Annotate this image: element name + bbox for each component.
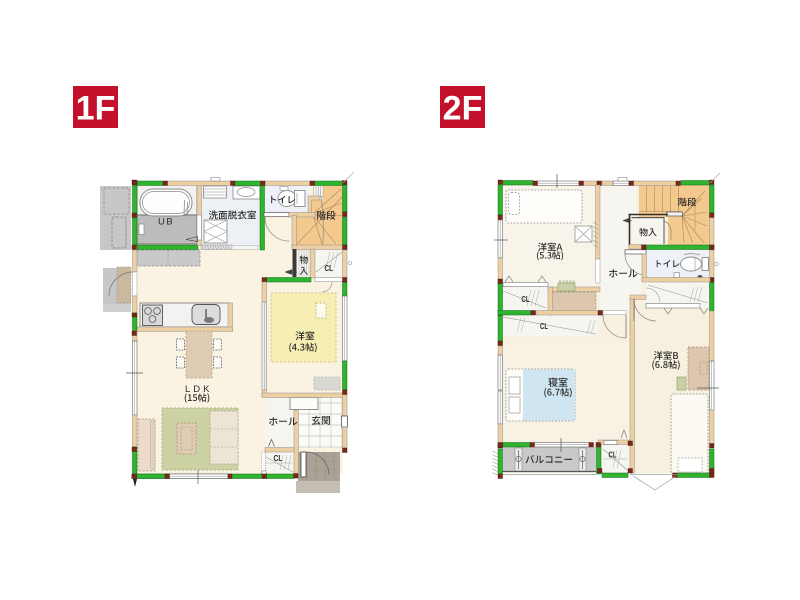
svg-text:CL: CL	[325, 263, 334, 273]
svg-text:UB: UB	[158, 217, 174, 228]
svg-text:CL: CL	[609, 450, 617, 460]
svg-text:1F: 1F	[76, 90, 116, 128]
svg-text:CL: CL	[540, 321, 548, 331]
svg-text:CL: CL	[274, 453, 283, 463]
svg-text:LDK: LDK	[185, 384, 212, 395]
svg-text:2F: 2F	[443, 90, 483, 128]
svg-text:CL: CL	[522, 294, 530, 304]
